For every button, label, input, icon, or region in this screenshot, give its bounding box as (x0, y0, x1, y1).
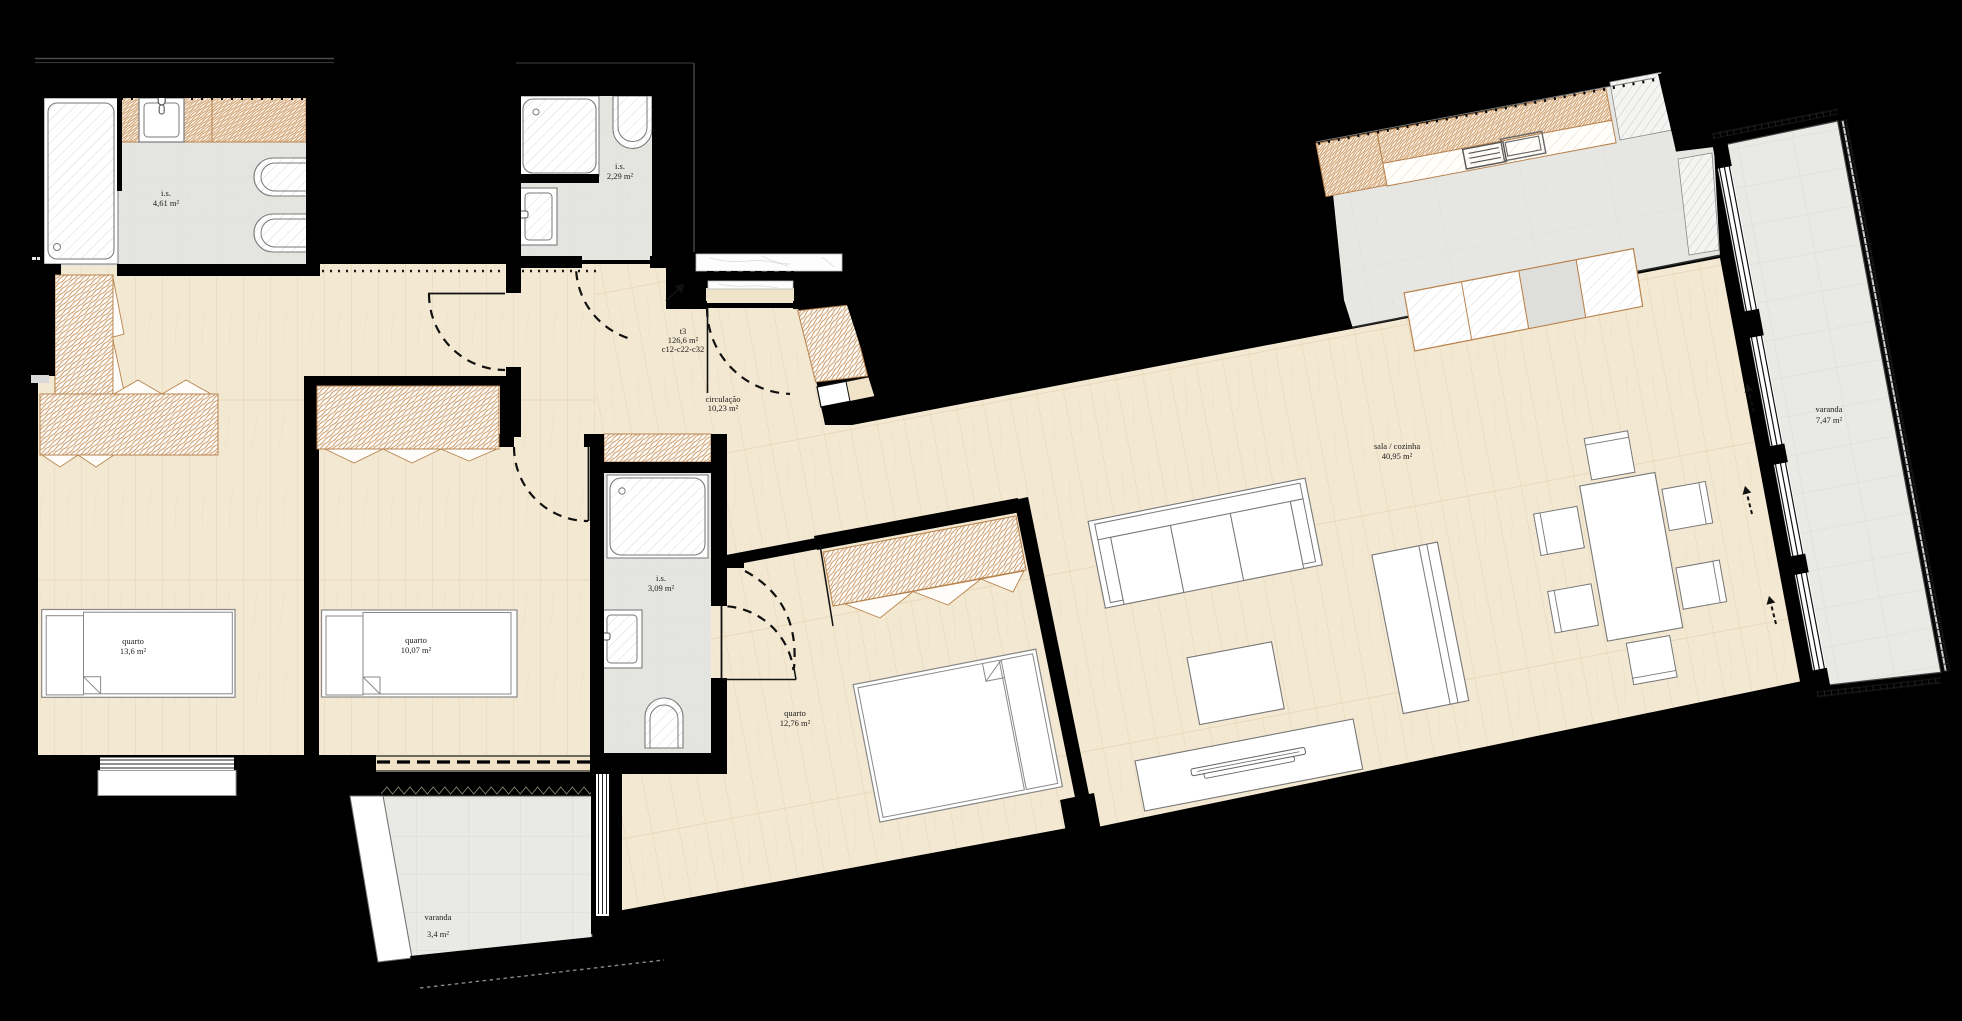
svg-text:4,61 m²: 4,61 m² (153, 198, 180, 208)
svg-text:40,95 m²: 40,95 m² (1382, 451, 1413, 461)
svg-text:13,6 m²: 13,6 m² (120, 646, 147, 656)
svg-text:sala / cozinha: sala / cozinha (1374, 441, 1420, 451)
svg-text:7,47 m²: 7,47 m² (1816, 415, 1843, 425)
svg-text:c12-c22-c32: c12-c22-c32 (662, 344, 704, 354)
svg-text:10,23 m²: 10,23 m² (708, 403, 739, 413)
svg-text:i.s.: i.s. (615, 161, 625, 171)
svg-text:varanda: varanda (1816, 404, 1843, 414)
svg-text:i.s.: i.s. (656, 573, 666, 583)
svg-text:3,4 m²: 3,4 m² (427, 929, 449, 939)
svg-text:10,07 m²: 10,07 m² (401, 645, 432, 655)
svg-text:quarto: quarto (122, 636, 144, 646)
svg-text:varanda: varanda (425, 912, 452, 922)
svg-text:2,29 m²: 2,29 m² (607, 171, 634, 181)
svg-text:quarto: quarto (405, 635, 427, 645)
svg-text:3,09 m²: 3,09 m² (648, 583, 675, 593)
svg-text:i.s.: i.s. (161, 188, 171, 198)
svg-text:12,76 m²: 12,76 m² (780, 718, 811, 728)
svg-text:quarto: quarto (784, 708, 806, 718)
